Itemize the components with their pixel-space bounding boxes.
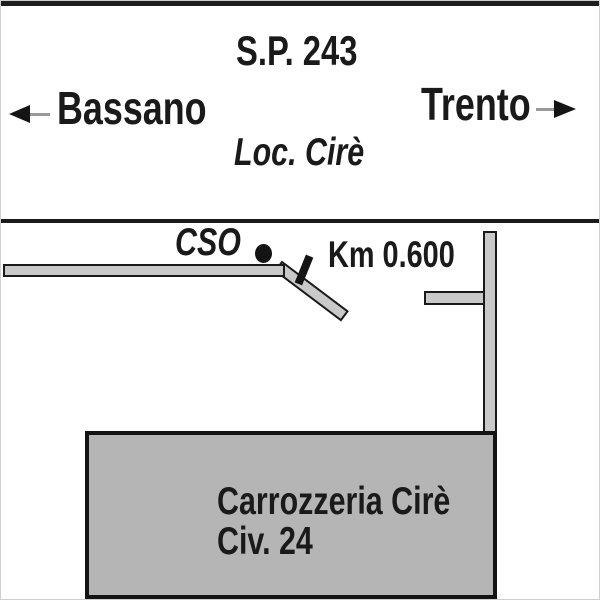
building-carrozzeria: Carrozzeria Cirè Civ. 24 [85, 431, 497, 599]
km-label: Km 0.600 [328, 236, 455, 273]
top-border-bar [1, 1, 600, 6]
arrow-left-tail [30, 113, 50, 116]
side-road-stub [424, 291, 487, 305]
location-map: S.P. 243 Bassano Trento Loc. Cirè CSO Km… [0, 0, 600, 600]
building-civic-number: Civ. 24 [217, 522, 450, 562]
road-name-title: S.P. 243 [236, 30, 357, 72]
main-road-line [1, 219, 599, 223]
poi-dot-icon [255, 244, 272, 263]
building-label: Carrozzeria Cirè Civ. 24 [217, 482, 450, 562]
arrow-right-icon [536, 100, 576, 118]
destination-left-label: Bassano [57, 85, 207, 131]
side-road-vertical [483, 231, 497, 434]
access-road-left [3, 264, 285, 277]
locality-label: Loc. Cirè [234, 133, 364, 172]
arrow-right-head [554, 100, 576, 118]
arrow-left-head [9, 105, 30, 123]
arrow-left-icon [9, 105, 50, 123]
arrow-right-tail [536, 108, 554, 111]
destination-right-label: Trento [421, 81, 531, 127]
building-name: Carrozzeria Cirè [217, 482, 450, 522]
poi-label: CSO [175, 223, 241, 262]
